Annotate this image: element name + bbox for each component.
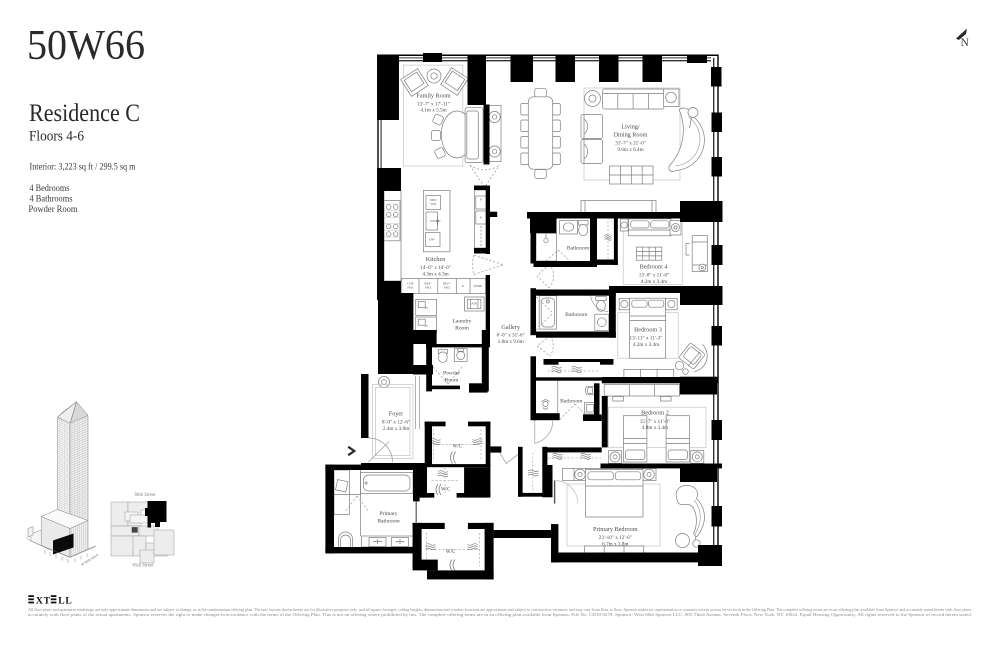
- svg-text:T: T: [44, 595, 51, 606]
- svg-text:L: L: [58, 595, 64, 606]
- svg-text:4.8m x 3.4m: 4.8m x 3.4m: [642, 425, 668, 431]
- svg-text:P: P: [462, 284, 464, 288]
- svg-text:Laundry: Laundry: [453, 319, 472, 325]
- svg-text:2.4m x 3.8m: 2.4m x 3.8m: [383, 426, 409, 432]
- svg-text:Room: Room: [445, 378, 459, 384]
- svg-text:4.1m x 5.5m: 4.1m x 5.5m: [420, 108, 446, 114]
- svg-text:6′-0″ x 31′-6″: 6′-0″ x 31′-6″: [497, 333, 525, 339]
- svg-text:9.6m x 6.4m: 9.6m x 6.4m: [617, 147, 643, 153]
- svg-text:31′-7″ x 21′-0″: 31′-7″ x 21′-0″: [615, 141, 646, 147]
- svg-text:Dining Room: Dining Room: [614, 132, 648, 139]
- svg-text:50W66: 50W66: [27, 23, 145, 69]
- svg-text:Powder Room: Powder Room: [29, 204, 78, 215]
- svg-text:Interior: 3,223 sq ft / 299.5: Interior: 3,223 sq ft / 299.5 sq m: [30, 162, 136, 173]
- svg-text:4.3m x 4.3m: 4.3m x 4.3m: [422, 271, 448, 277]
- svg-text:Family Room: Family Room: [416, 93, 450, 100]
- svg-text:Primary: Primary: [379, 511, 397, 517]
- svg-text:FRZ: FRZ: [444, 286, 450, 290]
- svg-text:Primary Bedroom: Primary Bedroom: [593, 526, 638, 533]
- svg-text:4 Bathrooms: 4 Bathrooms: [30, 194, 73, 205]
- svg-text:Room: Room: [455, 326, 469, 332]
- svg-text:Residence C: Residence C: [29, 100, 140, 127]
- svg-text:W/C: W/C: [446, 550, 456, 555]
- svg-text:X: X: [36, 595, 43, 606]
- svg-text:66th Street: 66th Street: [135, 493, 157, 498]
- svg-text:4.2m x 3.4m: 4.2m x 3.4m: [633, 342, 659, 348]
- svg-text:N: N: [961, 37, 970, 49]
- svg-text:Powder: Powder: [443, 371, 460, 377]
- svg-text:65th Street: 65th Street: [133, 564, 155, 569]
- svg-text:P: P: [480, 216, 482, 220]
- svg-text:W/C: W/C: [453, 445, 463, 450]
- svg-text:6.7m x 3.8m: 6.7m x 3.8m: [602, 541, 628, 547]
- svg-text:Bathroom: Bathroom: [565, 312, 588, 318]
- svg-text:Living/: Living/: [621, 124, 639, 131]
- svg-text:FRZ: FRZ: [425, 286, 431, 290]
- svg-text:DW: DW: [429, 238, 435, 242]
- svg-text:Floors 4-6: Floors 4-6: [29, 129, 84, 145]
- svg-text:8′-0″ x 12′-6″: 8′-0″ x 12′-6″: [382, 420, 410, 426]
- svg-text:FEE: FEE: [407, 286, 413, 290]
- svg-text:15′-7″ x 11′-0″: 15′-7″ x 11′-0″: [640, 419, 671, 425]
- svg-text:Kitchen: Kitchen: [426, 256, 446, 263]
- svg-text:Bedroom 3: Bedroom 3: [634, 327, 662, 334]
- svg-text:W/C: W/C: [441, 488, 451, 493]
- svg-text:Bathroom: Bathroom: [560, 399, 583, 405]
- svg-text:13′-11″ x 11′-3″: 13′-11″ x 11′-3″: [629, 336, 662, 342]
- svg-text:AIR: AIR: [471, 302, 478, 306]
- svg-text:14′-0″ x 14′-0″: 14′-0″ x 14′-0″: [420, 265, 451, 271]
- svg-text:Bedroom 4: Bedroom 4: [640, 264, 668, 271]
- svg-text:4 Bedrooms: 4 Bedrooms: [30, 183, 70, 194]
- svg-text:WINE: WINE: [473, 284, 482, 288]
- svg-text:13′-8″ x 11′-0″: 13′-8″ x 11′-0″: [639, 273, 670, 279]
- svg-text:Gallery: Gallery: [501, 324, 520, 331]
- svg-text:P: P: [480, 198, 482, 202]
- svg-text:Foyer: Foyer: [389, 411, 403, 418]
- svg-text:Bathroom: Bathroom: [377, 519, 400, 525]
- svg-text:Bathroom: Bathroom: [567, 246, 590, 252]
- svg-text:L: L: [65, 595, 71, 606]
- svg-text:23′-10″ x 12′-6″: 23′-10″ x 12′-6″: [599, 535, 632, 541]
- svg-text:1.8m x 9.6m: 1.8m x 9.6m: [498, 339, 524, 345]
- svg-text:Bedroom 2: Bedroom 2: [641, 410, 669, 417]
- svg-text:4.2m x 3.4m: 4.2m x 3.4m: [641, 279, 667, 285]
- svg-text:WD: WD: [430, 202, 436, 206]
